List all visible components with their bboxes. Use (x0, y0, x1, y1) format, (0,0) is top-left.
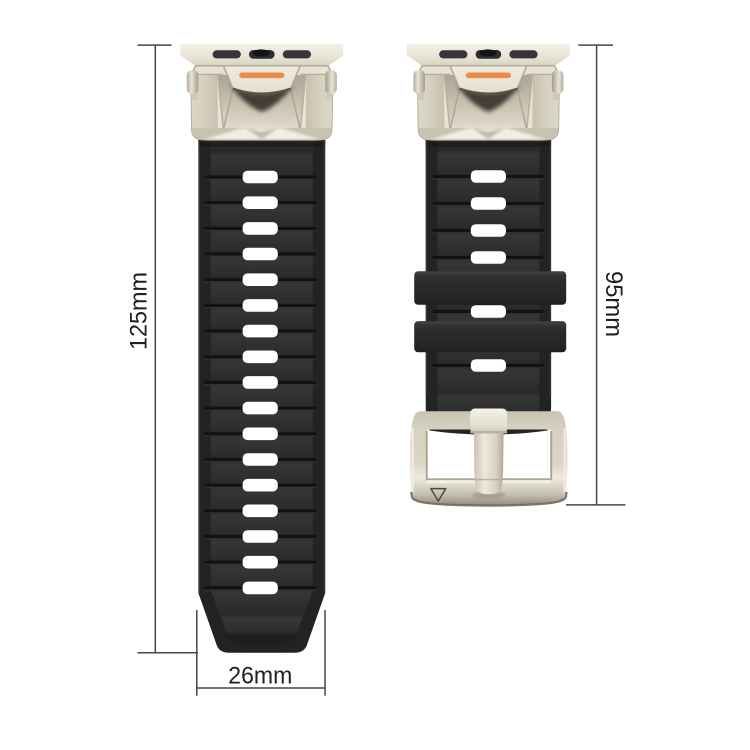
svg-text:95mm: 95mm (600, 271, 627, 337)
svg-text:125mm: 125mm (125, 272, 152, 350)
svg-text:26mm: 26mm (228, 663, 292, 690)
